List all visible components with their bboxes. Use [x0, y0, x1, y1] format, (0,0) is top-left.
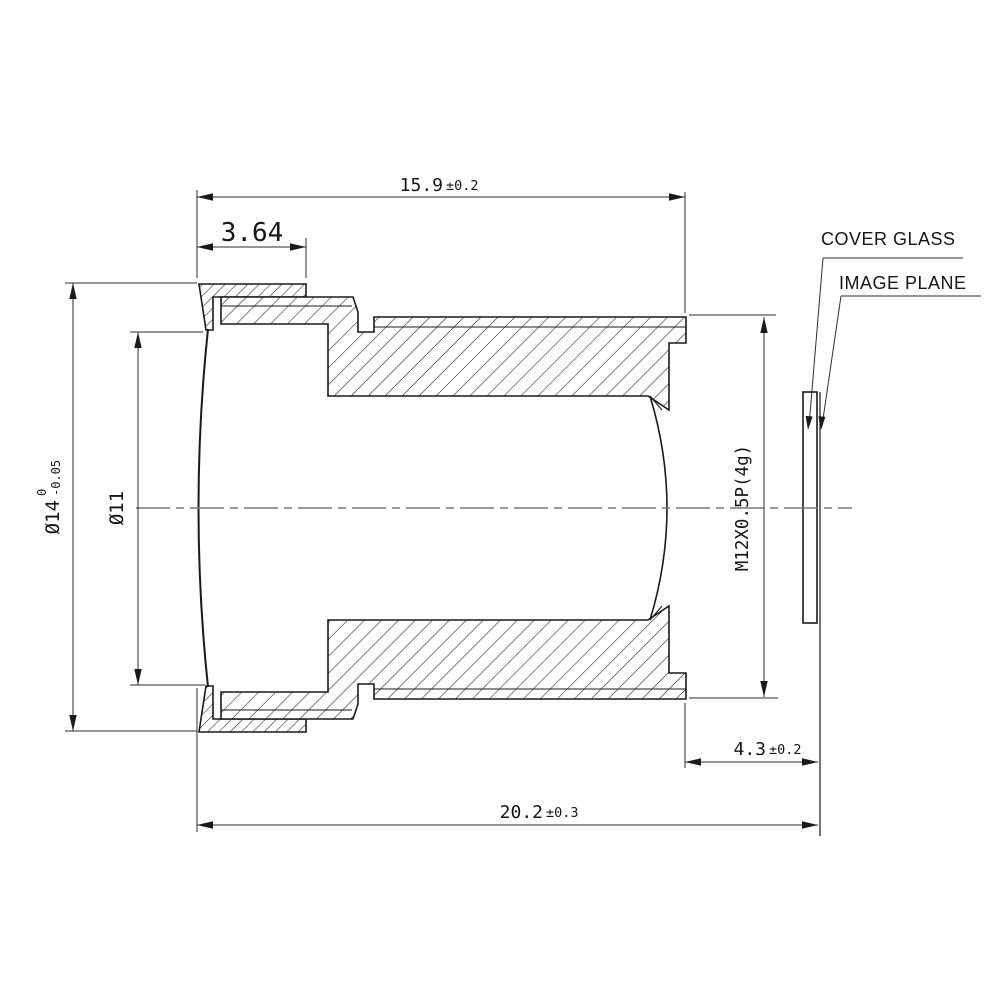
- image-plane-label: IMAGE PLANE: [839, 273, 967, 293]
- drawing-canvas: 15.9 ±0.2 3.64 20.2 ±0.3 4.3 ±0.2 Ø14 0 …: [0, 0, 1000, 1000]
- dim-thread-spec: M12X0.5P(4g): [733, 445, 753, 571]
- barrel-wall-top: [221, 297, 686, 410]
- dim-clear-aperture: Ø11: [106, 491, 128, 525]
- cover-glass-label: COVER GLASS: [821, 229, 956, 249]
- dimension-arrowheads: [69, 193, 825, 829]
- dim-outer-diameter-tol-upper: 0: [35, 489, 49, 496]
- dim-total-length-tol: ±0.3: [546, 805, 579, 821]
- dim-barrel-length: 15.9: [400, 175, 443, 196]
- dim-back-focal-tol: ±0.2: [769, 742, 802, 758]
- dim-front-ring: 3.64: [221, 218, 284, 248]
- barrel-wall-bottom: [221, 606, 686, 719]
- dim-barrel-length-tol: ±0.2: [446, 178, 479, 194]
- dim-total-length: 20.2: [500, 802, 543, 823]
- dim-outer-diameter-tol-lower: -0.05: [49, 460, 63, 496]
- dim-back-focal: 4.3: [733, 739, 766, 760]
- dim-outer-diameter-group: Ø14 0 -0.05: [35, 460, 64, 534]
- lens-technical-drawing: 15.9 ±0.2 3.64 20.2 ±0.3 4.3 ±0.2 Ø14 0 …: [0, 0, 1000, 1000]
- dim-outer-diameter: Ø14: [42, 500, 64, 534]
